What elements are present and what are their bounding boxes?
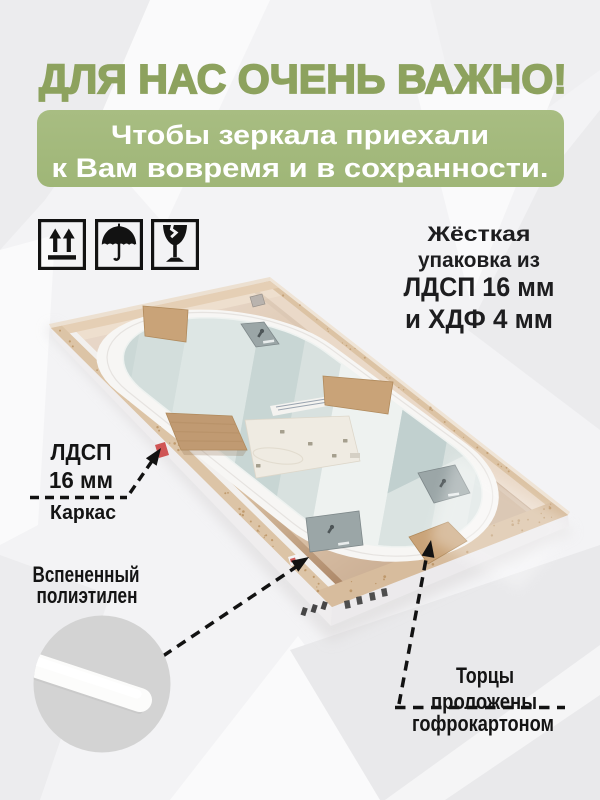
svg-text:полиэтилен: полиэтилен bbox=[37, 583, 138, 608]
svg-text:16 мм: 16 мм bbox=[49, 467, 113, 493]
svg-text:упаковка из: упаковка из bbox=[418, 248, 540, 272]
svg-text:ЛДСП 16 мм: ЛДСП 16 мм bbox=[404, 272, 555, 302]
svg-text:Жёсткая: Жёсткая bbox=[426, 222, 530, 246]
svg-text:Чтобы зеркала приехали: Чтобы зеркала приехали bbox=[111, 120, 489, 150]
svg-text:Торцы: Торцы bbox=[456, 663, 514, 688]
svg-text:гофрокартоном: гофрокартоном bbox=[412, 711, 554, 736]
svg-text:ДЛЯ НАС ОЧЕНЬ ВАЖНО!: ДЛЯ НАС ОЧЕНЬ ВАЖНО! bbox=[39, 56, 567, 102]
svg-text:ЛДСП: ЛДСП bbox=[51, 439, 112, 465]
svg-text:к Вам вовремя и в сохранности.: к Вам вовремя и в сохранности. bbox=[52, 153, 549, 183]
svg-text:и ХДФ 4 мм: и ХДФ 4 мм bbox=[405, 304, 553, 334]
svg-text:Каркас: Каркас bbox=[50, 502, 116, 524]
